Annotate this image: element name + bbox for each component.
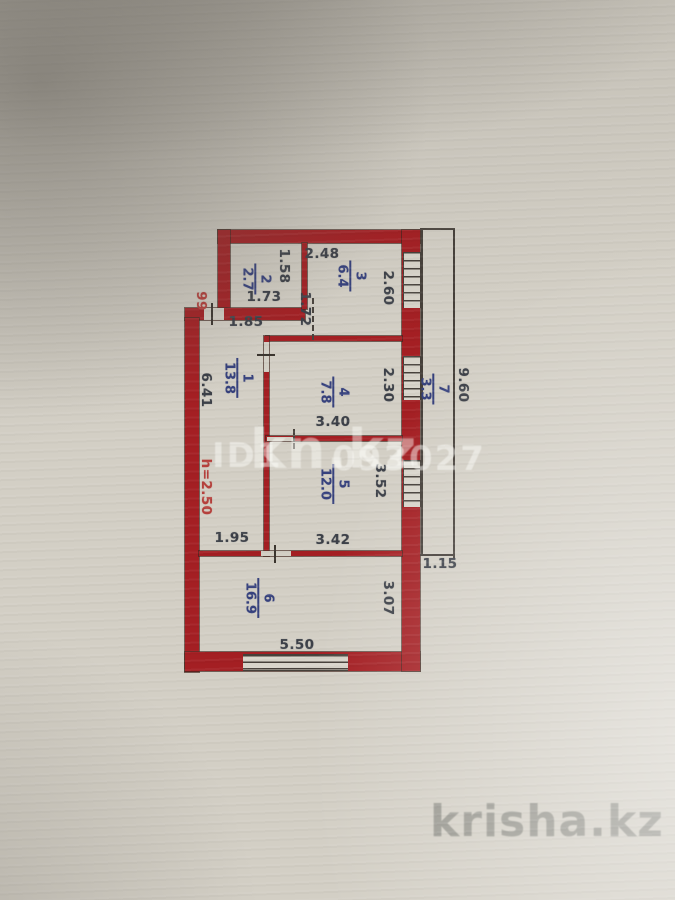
- dim-room2-width: 1.73: [247, 289, 282, 305]
- room-label-7: 7 3.3: [417, 377, 450, 400]
- door-mark: [257, 354, 275, 356]
- floorplan-photo: 1 13.8 2 2.7 3 6.4 4 7.8 5 12.0 6 16.9 7…: [0, 0, 675, 900]
- door-opening: [264, 342, 269, 372]
- door-mark: [274, 545, 276, 563]
- room-number: 3: [349, 260, 366, 291]
- room-area: 3.3: [417, 377, 432, 400]
- room-number: 4: [332, 376, 349, 407]
- dim-room2-height: 1.58: [276, 249, 292, 284]
- wall-left-lower: [185, 318, 199, 672]
- room-label-6: 6 16.9: [242, 582, 275, 614]
- opening-dashed-line: [293, 429, 295, 449]
- room-label-2: 2 2.7: [239, 267, 272, 290]
- room-number: 5: [332, 464, 349, 504]
- door-mark: [211, 303, 213, 325]
- wall-room3-room4: [266, 336, 402, 341]
- dim-balcony-width: 1.15: [423, 556, 458, 572]
- dim-room23-passage: 1.72: [297, 292, 313, 327]
- room-area: 16.9: [242, 582, 257, 614]
- dim-room5-width: 3.42: [316, 532, 351, 548]
- dim-room5-height: 3.52: [372, 464, 388, 499]
- room-area: 7.8: [317, 380, 332, 403]
- wall-room6-top: [199, 551, 402, 556]
- window: [403, 252, 421, 308]
- dim-room6-height: 3.07: [380, 581, 396, 616]
- room-label-1: 1 13.8: [221, 362, 254, 394]
- wall-top: [218, 230, 420, 243]
- door-opening: [267, 437, 293, 441]
- ceiling-height-note: h=2.50: [198, 459, 214, 516]
- room-area: 6.4: [334, 264, 349, 287]
- dim-hall-bottom-width: 1.95: [215, 530, 250, 546]
- wall-left-upper: [218, 230, 230, 318]
- room-area: 12.0: [317, 468, 332, 500]
- dim-room4-height: 2.30: [380, 368, 396, 403]
- room-label-4: 4 7.8: [317, 380, 350, 403]
- dim-room3-height: 2.60: [380, 271, 396, 306]
- dim-room6-width: 5.50: [280, 637, 315, 653]
- room-number: 6: [257, 578, 274, 618]
- floor-plan: 1 13.8 2 2.7 3 6.4 4 7.8 5 12.0 6 16.9 7…: [0, 0, 675, 900]
- room-number: 7: [432, 373, 449, 404]
- dim-hall-top-width: 1.85: [229, 314, 264, 330]
- door-opening: [261, 551, 291, 556]
- room-label-3: 3 6.4: [334, 264, 367, 287]
- dim-room4-width: 3.40: [316, 414, 351, 430]
- dim-hall-height: 6.41: [198, 373, 214, 408]
- room-area: 13.8: [221, 362, 236, 394]
- dim-balcony-length: 9.60: [455, 368, 471, 403]
- unit-number: 99: [193, 291, 209, 311]
- window: [403, 460, 421, 507]
- room-area: 2.7: [239, 267, 254, 290]
- room-number: 1: [236, 358, 253, 398]
- window: [243, 654, 348, 671]
- room-label-5: 5 12.0: [317, 468, 350, 500]
- balcony-outline: [420, 228, 455, 230]
- dim-room3-width-top: 2.48: [305, 246, 340, 262]
